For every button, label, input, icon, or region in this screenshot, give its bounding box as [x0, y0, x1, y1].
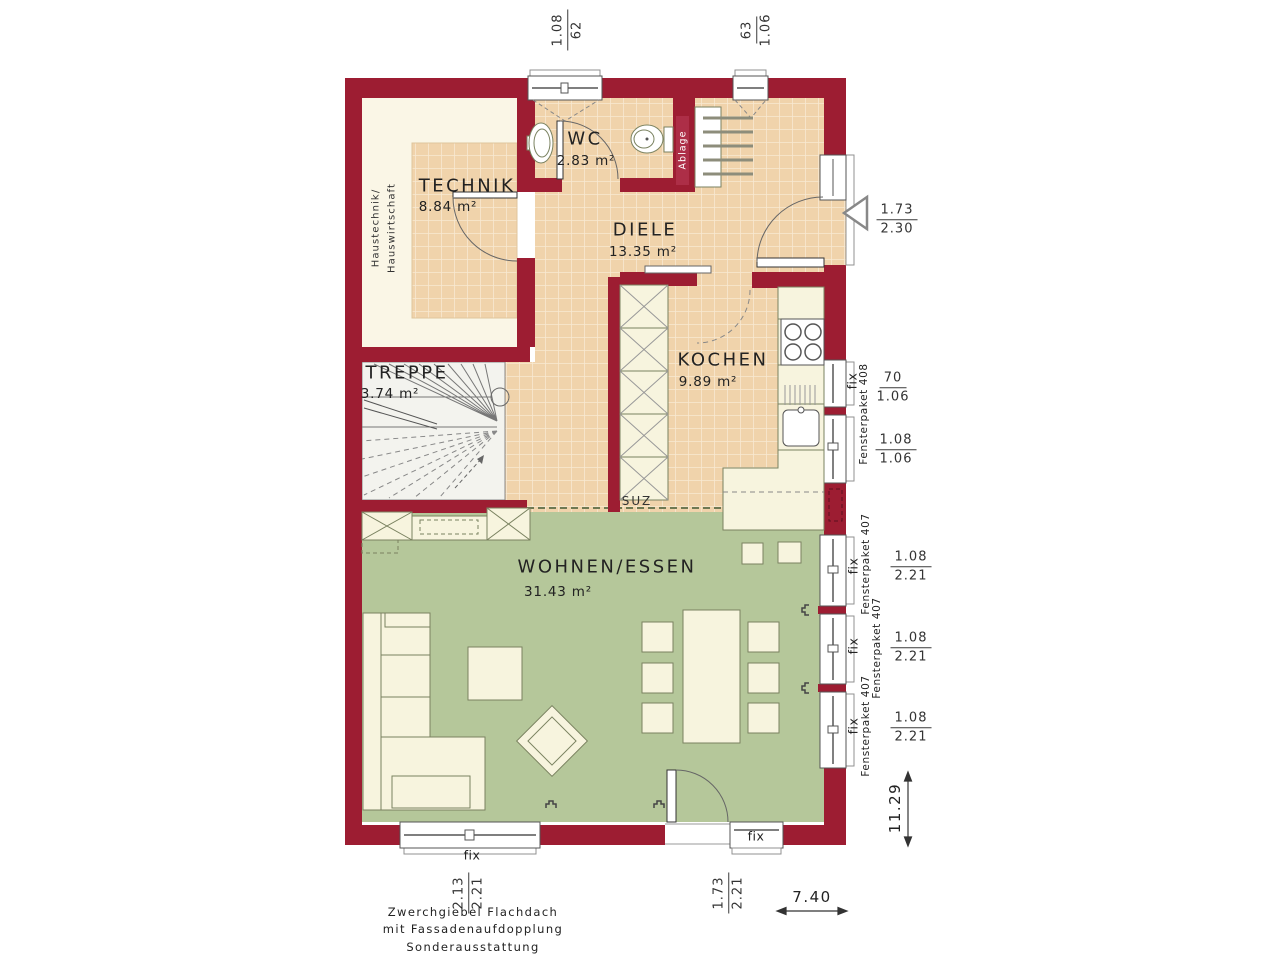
- dim-top-2: 631.06: [735, 14, 775, 47]
- note-line-2: mit Fassadenaufdopplung: [383, 921, 563, 938]
- room-label-treppe: TREPPE: [366, 363, 449, 384]
- room-label-technik: TECHNIK: [419, 176, 516, 197]
- dim-num: 1.08: [891, 549, 932, 567]
- sublabel-line1: Haustechnik/: [369, 189, 385, 268]
- fix-label-bottom-right: fix: [748, 829, 765, 844]
- wc-toilet: [631, 125, 673, 153]
- fix-label-407c: fix: [846, 718, 861, 735]
- paket-408-label: Fensterpaket 408: [858, 363, 870, 464]
- sublabel-line2: Hauswirtschaft: [384, 183, 400, 273]
- dim-living-window-2: 1.082.21: [891, 626, 932, 666]
- kitchen-sink: [783, 410, 819, 446]
- room-sublabel-technik: Haustechnik/ Hauswirtschaft: [369, 183, 400, 273]
- room-area-diele: 13.35 m²: [609, 244, 677, 260]
- coat-rack: [695, 107, 753, 187]
- fix-label-bottom-left: fix: [464, 848, 481, 863]
- stool: [778, 542, 801, 563]
- room-area-kochen: 9.89 m²: [679, 374, 738, 390]
- room-area-technik: 8.84 m²: [419, 199, 478, 215]
- room-label-diele: DIELE: [613, 220, 677, 241]
- dim-den: 2.21: [895, 729, 928, 746]
- dim-den: 2.21: [730, 877, 747, 910]
- plan-note: Zwerchgiebel Flachdach mit Fassadenaufdo…: [383, 904, 563, 956]
- dim-num: 70: [880, 370, 907, 388]
- depth-arrow: [905, 772, 912, 846]
- dim-den: 2.30: [881, 221, 914, 238]
- window-kitchen-2: [820, 415, 854, 483]
- overall-depth-label: 11.29: [886, 783, 904, 833]
- overall-width-label: 7.40: [792, 888, 831, 906]
- dim-num: 1.73: [877, 202, 918, 220]
- paket-407c-label: Fensterpaket 407: [860, 675, 872, 776]
- dining-table: [683, 610, 740, 743]
- dim-living-window-3: 1.082.21: [891, 706, 932, 746]
- note-line-3: Sonderausstattung: [383, 939, 563, 956]
- dim-den: 2.21: [895, 568, 928, 585]
- room-area-treppe: 3.74 m²: [361, 386, 420, 402]
- room-area-wc: 2.83 m²: [557, 153, 616, 169]
- room-label-kochen: KOCHEN: [678, 350, 769, 371]
- chair: [642, 622, 673, 652]
- dim-den: 1.06: [758, 14, 775, 47]
- chair: [642, 663, 673, 693]
- room-label-wohnen: WOHNEN/ESSEN: [518, 557, 697, 578]
- dim-kitchen-window-2: 1.081.06: [876, 428, 917, 468]
- dim-num: 1.08: [550, 10, 568, 51]
- floorplan-page: TECHNIK 8.84 m² Haustechnik/ Hauswirtsch…: [0, 0, 1280, 960]
- suz-label: SUZ: [622, 494, 652, 508]
- dim-den: 1.06: [877, 389, 910, 406]
- hall-console: [645, 266, 711, 273]
- fix-label-407b: fix: [846, 638, 861, 655]
- dim-bottom-2: 1.732.21: [707, 873, 747, 914]
- stool: [742, 543, 763, 564]
- room-label-wc: WC: [567, 129, 602, 150]
- dim-num: 1.08: [891, 630, 932, 648]
- kitchen-tall-cabinet: [620, 285, 668, 500]
- chair: [748, 703, 779, 733]
- width-arrow: [777, 908, 847, 915]
- dim-den: 62: [569, 21, 586, 40]
- note-line-1: Zwerchgiebel Flachdach: [383, 904, 563, 921]
- chair: [642, 703, 673, 733]
- dim-num: 1.08: [891, 710, 932, 728]
- dim-entrance-door: 1.732.30: [877, 198, 918, 238]
- dim-living-window-1: 1.082.21: [891, 545, 932, 585]
- chair: [748, 622, 779, 652]
- coffee-table: [468, 647, 522, 700]
- dim-num: 1.73: [711, 873, 729, 914]
- entrance-arrow-icon: [844, 197, 867, 229]
- dim-den: 1.06: [880, 451, 913, 468]
- dim-top-1: 1.0862: [546, 10, 586, 51]
- fix-label-407a: fix: [846, 558, 861, 575]
- paket-407b-label: Fensterpaket 407: [871, 597, 883, 698]
- dim-num: 1.08: [876, 432, 917, 450]
- room-area-wohnen: 31.43 m²: [524, 584, 592, 600]
- ablage-label: Ablage: [678, 131, 689, 170]
- floorplan-drawing: [0, 0, 1280, 960]
- chair: [748, 663, 779, 693]
- dim-den: 2.21: [895, 649, 928, 666]
- dim-kitchen-window-1: 701.06: [877, 366, 910, 406]
- dim-num: 63: [739, 17, 757, 44]
